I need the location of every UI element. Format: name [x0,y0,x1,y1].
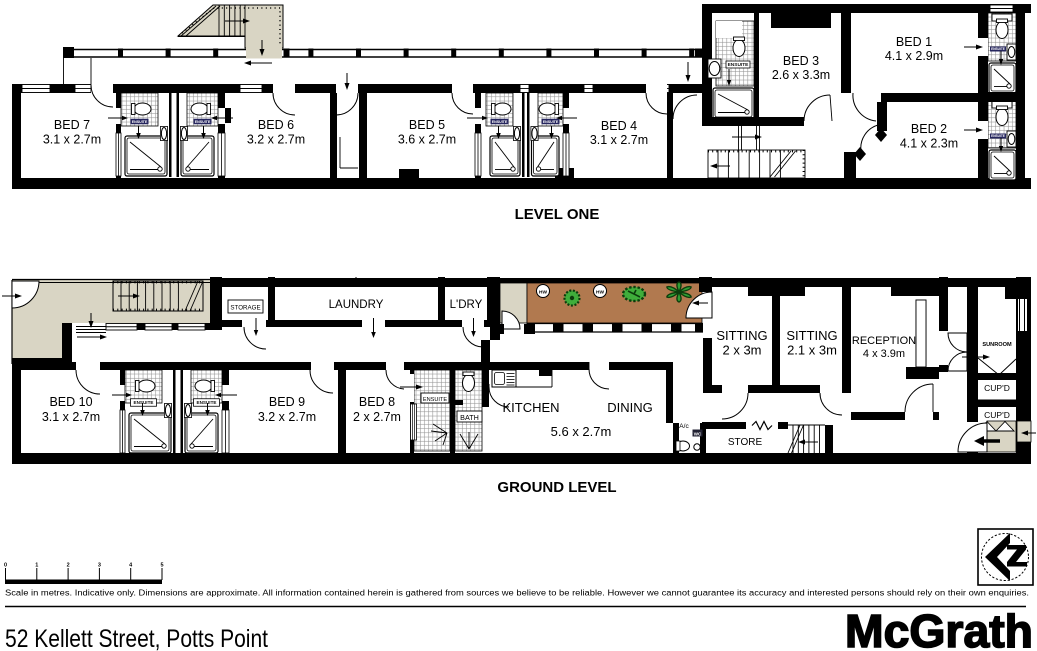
svg-text:L'DRY: L'DRY [450,299,483,311]
svg-text:4 x 3.9m: 4 x 3.9m [863,348,905,360]
svg-text:DINING: DINING [607,400,653,415]
svg-text:CUP'D: CUP'D [984,383,1010,393]
svg-text:52 Kellett Street, Potts Point: 52 Kellett Street, Potts Point [5,625,268,651]
svg-text:LAUNDRY: LAUNDRY [329,299,384,311]
svg-text:SITTING: SITTING [786,328,837,343]
svg-text:3.1 x 2.7m: 3.1 x 2.7m [43,133,101,147]
svg-text:SITTING: SITTING [716,328,767,343]
svg-text:2: 2 [67,563,70,569]
svg-text:2 x 3m: 2 x 3m [722,343,761,358]
svg-text:ENSUITE: ENSUITE [991,134,1005,138]
svg-text:ENSUITE: ENSUITE [728,62,750,68]
svg-text:HW: HW [596,290,604,296]
svg-text:GROUND LEVEL: GROUND LEVEL [497,479,616,496]
svg-text:3: 3 [98,563,101,569]
svg-text:ENSUITE: ENSUITE [132,120,148,124]
svg-text:4.1 x 2.3m: 4.1 x 2.3m [900,137,958,151]
svg-text:3.6 x 2.7m: 3.6 x 2.7m [398,133,456,147]
svg-text:LEVEL ONE: LEVEL ONE [515,206,600,223]
svg-text:BED 4: BED 4 [601,119,637,133]
svg-text:3.1 x 2.7m: 3.1 x 2.7m [42,410,100,424]
svg-text:ENSUITE: ENSUITE [991,47,1005,51]
svg-text:STORE: STORE [728,437,763,448]
svg-text:3.2 x 2.7m: 3.2 x 2.7m [258,410,316,424]
svg-text:CUP'D: CUP'D [984,410,1010,420]
svg-text:ENSUITE: ENSUITE [195,120,211,124]
svg-text:ENSUITE: ENSUITE [492,120,508,124]
svg-text:BED 6: BED 6 [258,118,294,132]
svg-text:2 x 2.7m: 2 x 2.7m [353,410,401,424]
svg-text:BED 8: BED 8 [359,395,395,409]
svg-text:A/c: A/c [679,423,689,430]
svg-text:3.1 x 2.7m: 3.1 x 2.7m [590,133,648,147]
svg-text:BED 3: BED 3 [783,54,819,68]
svg-text:ENSUITE: ENSUITE [423,397,448,403]
svg-text:STORAGE: STORAGE [230,305,260,312]
svg-text:McGrath: McGrath [845,605,1033,651]
svg-text:1: 1 [35,563,38,569]
svg-text:BED 10: BED 10 [49,395,92,409]
svg-text:2.6 x 3.3m: 2.6 x 3.3m [772,68,830,82]
svg-text:5.6 x 2.7m: 5.6 x 2.7m [551,424,612,439]
svg-text:HW: HW [539,290,547,296]
svg-text:ENSUITE: ENSUITE [134,400,154,405]
svg-text:SUNROOM: SUNROOM [982,342,1012,348]
svg-text:WC: WC [694,432,702,437]
svg-text:BED 2: BED 2 [911,122,947,136]
svg-text:ENSUITE: ENSUITE [543,120,559,124]
svg-text:2.1 x 3m: 2.1 x 3m [787,343,837,358]
svg-text:KITCHEN: KITCHEN [502,400,559,415]
svg-text:BATH: BATH [460,413,479,422]
svg-text:Scale in metres. Indicative on: Scale in metres. Indicative only. Dimens… [5,589,1029,598]
svg-text:BED 1: BED 1 [896,35,932,49]
svg-text:0: 0 [4,563,7,569]
svg-text:BED 5: BED 5 [409,118,445,132]
svg-text:BED 9: BED 9 [269,395,305,409]
svg-text:BED 7: BED 7 [54,118,90,132]
svg-text:5: 5 [160,563,163,569]
svg-text:RECEPTION: RECEPTION [852,335,916,347]
svg-text:4.1 x 2.9m: 4.1 x 2.9m [885,49,943,63]
svg-text:ENSUITE: ENSUITE [197,400,217,405]
svg-text:3.2 x 2.7m: 3.2 x 2.7m [247,133,305,147]
